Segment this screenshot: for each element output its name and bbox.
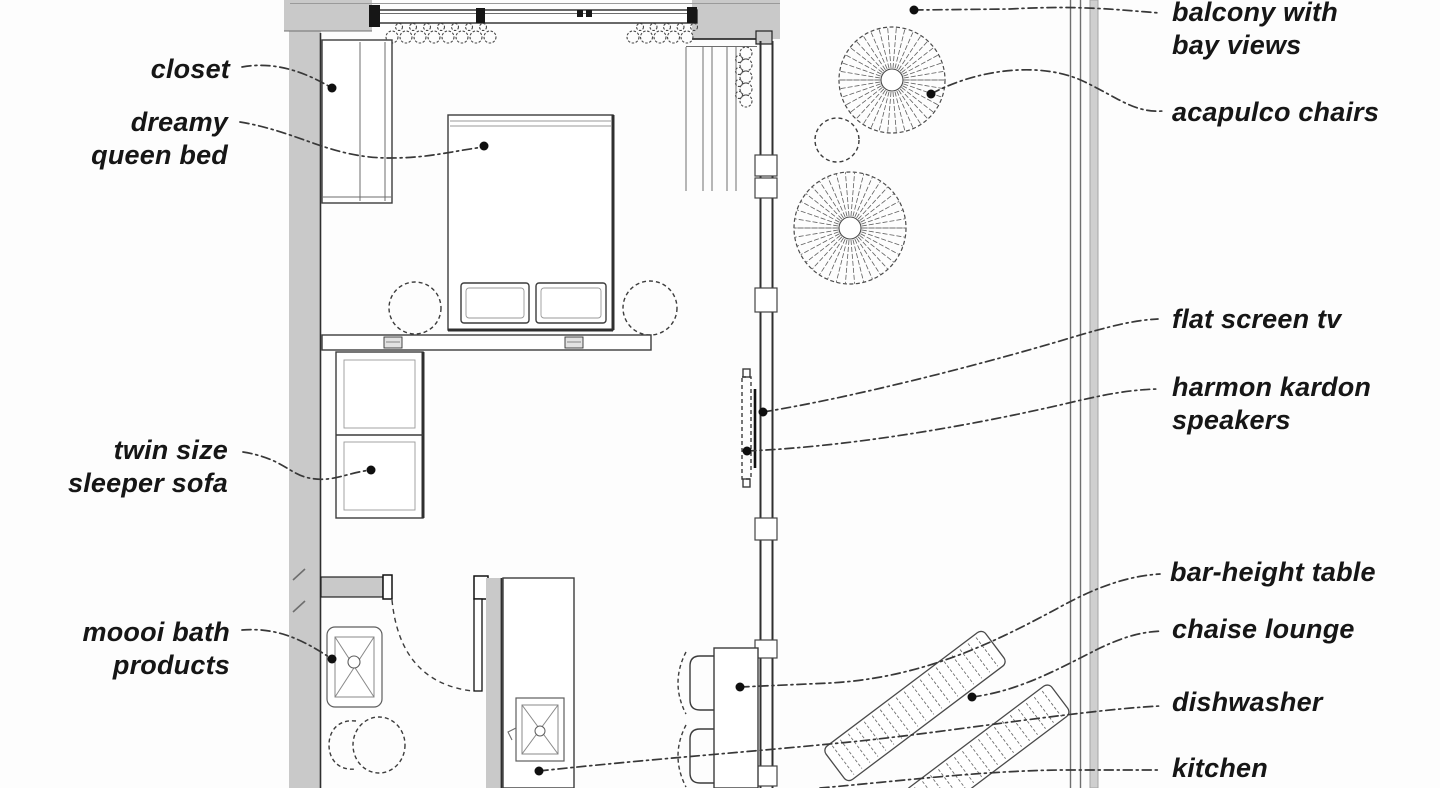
- door-swing-arc: [392, 600, 472, 691]
- balcony-side-table: [815, 118, 859, 162]
- label-bar-table: bar-height table: [1170, 556, 1376, 589]
- balcony-railing: [1071, 0, 1099, 788]
- door-leaf: [474, 599, 482, 691]
- label-sleeper-sofa-line2: sleeper sofa: [68, 467, 228, 500]
- label-balcony: balcony with bay views: [1172, 0, 1338, 62]
- label-speakers: harmon kardon speakers: [1172, 371, 1371, 437]
- label-queen-bed-line1: dreamy: [91, 106, 228, 139]
- label-flat-screen-tv: flat screen tv: [1172, 303, 1341, 336]
- floor-plan-canvas: closet dreamy queen bed twin size sleepe…: [0, 0, 1440, 788]
- track-bracket: [476, 8, 485, 23]
- leader-balcony: [914, 8, 1160, 13]
- bar-height-table: [714, 648, 758, 788]
- label-chaise-lounge: chaise lounge: [1172, 613, 1355, 646]
- label-bath-products: moooi bath products: [83, 616, 230, 682]
- track-bracket: [369, 5, 380, 27]
- sleeper-sofa: [336, 352, 423, 518]
- leader-tv: [763, 319, 1158, 412]
- label-acapulco-chairs: acapulco chairs: [1172, 96, 1379, 129]
- closet: [322, 40, 392, 203]
- label-balcony-line1: balcony with: [1172, 0, 1338, 29]
- toilet: [329, 717, 405, 773]
- bar-stool-back: [678, 725, 686, 787]
- queen-bed: [448, 115, 613, 330]
- label-queen-bed: dreamy queen bed: [91, 106, 228, 172]
- bar-stool-seat: [690, 656, 714, 710]
- acapulco-chair-1: [839, 27, 945, 133]
- bar-stools: [678, 652, 714, 787]
- label-kitchen: kitchen: [1172, 752, 1268, 785]
- bathroom-sink: [327, 627, 382, 707]
- leader-kitchen: [820, 770, 1160, 788]
- headboard-shelf: [322, 335, 651, 350]
- bathroom-door: [392, 599, 482, 691]
- track-bracket: [687, 7, 697, 23]
- label-queen-bed-line2: queen bed: [91, 139, 228, 172]
- label-sleeper-sofa-line1: twin size: [68, 434, 228, 467]
- leader-acapulco: [931, 70, 1163, 111]
- bar-stool-back: [678, 652, 686, 714]
- kitchen-counter: [503, 578, 574, 788]
- label-dishwasher: dishwasher: [1172, 686, 1323, 719]
- speaker-bar: [742, 369, 751, 487]
- nightstand-right: [623, 281, 677, 335]
- label-balcony-line2: bay views: [1172, 29, 1338, 62]
- nightstand-left: [389, 282, 441, 334]
- chaise-lounge: [822, 629, 1071, 788]
- label-sleeper-sofa: twin size sleeper sofa: [68, 434, 228, 500]
- label-speakers-line1: harmon kardon: [1172, 371, 1371, 404]
- acapulco-chair-2: [794, 172, 906, 284]
- label-closet: closet: [151, 53, 230, 86]
- label-bath-products-line1: moooi bath: [83, 616, 230, 649]
- label-speakers-line2: speakers: [1172, 404, 1371, 437]
- label-bath-products-line2: products: [83, 649, 230, 682]
